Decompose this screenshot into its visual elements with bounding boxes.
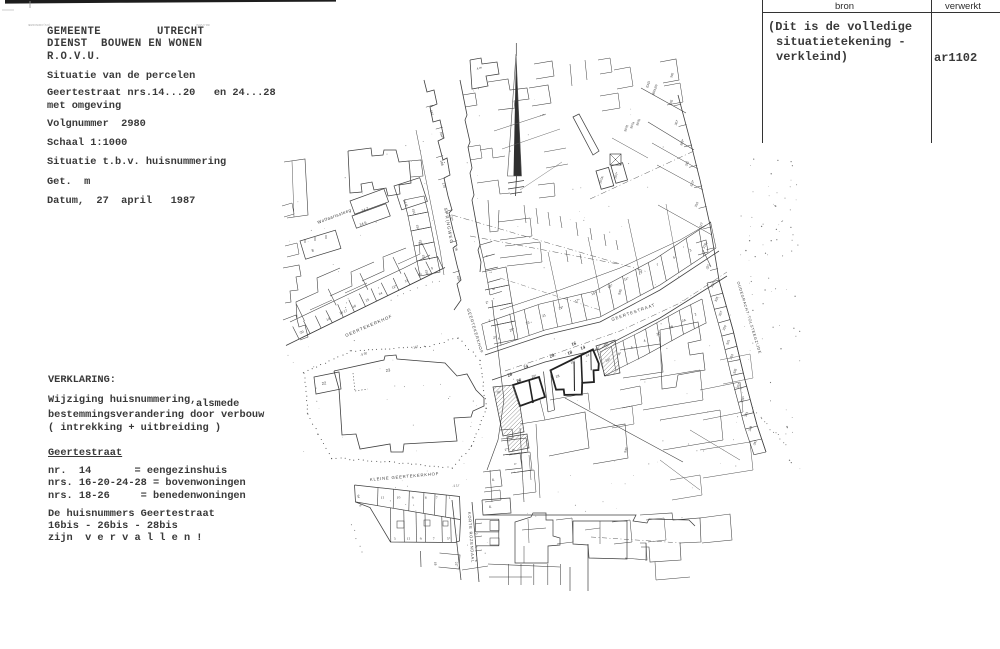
svg-text:GEERTEKERKHOF: GEERTEKERKHOF: [344, 313, 393, 337]
svg-text:19: 19: [326, 317, 331, 322]
svg-text:EAD: EAD: [645, 80, 651, 88]
svg-text:7: 7: [488, 271, 492, 274]
svg-text:4 m: 4 m: [476, 65, 483, 71]
svg-text:16*: 16*: [570, 359, 577, 365]
svg-text:17*: 17*: [574, 298, 581, 304]
svg-text:3: 3: [689, 248, 692, 252]
svg-text:21: 21: [542, 313, 547, 318]
svg-text:9: 9: [412, 496, 415, 500]
svg-text:315: 315: [694, 201, 700, 208]
svg-text:54: 54: [356, 494, 361, 499]
svg-text:335: 335: [732, 368, 738, 375]
svg-text:KORTE ROZENDAAL: KORTE ROZENDAAL: [467, 512, 476, 564]
svg-text:23: 23: [525, 320, 530, 325]
svg-text:309*: 309*: [679, 138, 685, 146]
svg-text:21*: 21*: [454, 561, 459, 567]
svg-text:Wolfaartssteeg: Wolfaartssteeg: [317, 207, 353, 225]
svg-text:4: 4: [513, 462, 517, 465]
svg-text:GEERTEKERKHOF: GEERTEKERKHOF: [466, 308, 485, 354]
svg-text:307b: 307b: [635, 118, 641, 126]
svg-text:16: 16: [352, 304, 357, 309]
svg-text:OUDEGRACHT-TOLSTEEGZIJDE: OUDEGRACHT-TOLSTEEGZIJDE: [736, 281, 762, 354]
svg-text:20.: 20.: [549, 353, 556, 360]
svg-text:331: 331: [725, 339, 731, 346]
svg-text:14: 14: [585, 353, 590, 358]
svg-text:329: 329: [722, 324, 728, 331]
svg-text:11: 11: [381, 496, 385, 500]
svg-text:8: 8: [311, 249, 314, 253]
svg-text:307: 307: [674, 119, 680, 126]
svg-text:9: 9: [420, 537, 423, 541]
svg-text:6.: 6.: [489, 505, 492, 509]
svg-text:305: 305: [669, 72, 675, 78]
svg-text:5: 5: [672, 255, 675, 259]
svg-text:10: 10: [397, 496, 401, 500]
svg-text:9: 9: [430, 266, 433, 270]
svg-text:159: 159: [424, 269, 429, 275]
svg-text:2: 2: [694, 312, 697, 316]
svg-text:4: 4: [485, 255, 489, 258]
svg-text:14: 14: [378, 291, 383, 296]
svg-text:13*: 13*: [607, 283, 614, 289]
svg-text:325: 325: [714, 296, 720, 303]
svg-text:25*: 25*: [509, 327, 516, 333]
svg-text:8: 8: [425, 496, 428, 500]
svg-text:. 5 30: . 5 30: [359, 351, 368, 357]
svg-text:. 147: . 147: [411, 344, 419, 350]
svg-text:341: 341: [744, 411, 750, 418]
svg-text:18: 18: [567, 350, 574, 357]
svg-text:19*: 19*: [558, 305, 565, 311]
svg-text:311: 311: [684, 160, 690, 166]
svg-text:3: 3: [394, 537, 397, 541]
svg-text:166: 166: [439, 160, 444, 167]
svg-text:2*: 2*: [485, 300, 490, 305]
svg-text:8*: 8*: [618, 351, 623, 356]
svg-text:14: 14: [580, 345, 587, 352]
svg-text:15: 15: [365, 297, 370, 302]
svg-text:11: 11: [404, 278, 409, 283]
svg-text:23: 23: [385, 367, 391, 373]
svg-text:6: 6: [630, 345, 633, 349]
svg-text:14-9: 14-9: [402, 199, 408, 207]
svg-text:+ m: + m: [539, 112, 546, 118]
svg-text:545: 545: [617, 289, 623, 296]
svg-text:2C: 2C: [656, 331, 662, 336]
svg-text:BRAZN: BRAZN: [651, 83, 659, 95]
svg-text:18: 18: [555, 374, 560, 379]
svg-text:333: 333: [729, 353, 735, 360]
svg-text:162: 162: [429, 109, 434, 116]
svg-text:327: 327: [718, 310, 724, 317]
svg-text:170: 170: [441, 182, 446, 189]
svg-text:KLEINE GEERTEKERKHOF: KLEINE GEERTEKERKHOF: [370, 471, 440, 482]
svg-text:11: 11: [407, 537, 411, 541]
svg-text:16: 16: [571, 341, 578, 348]
svg-text:5*: 5*: [447, 537, 451, 541]
svg-text:12*: 12*: [391, 284, 398, 290]
svg-text:14-7: 14-7: [361, 207, 369, 213]
svg-text:107*: 107*: [613, 171, 619, 179]
svg-text:6.: 6.: [492, 478, 495, 482]
svg-text:9: 9: [358, 504, 362, 507]
svg-text:153: 153: [415, 224, 420, 230]
svg-text:180: 180: [456, 275, 461, 282]
svg-text:339*: 339*: [740, 395, 746, 403]
svg-text:GEERTESTRAAT: GEERTESTRAAT: [611, 302, 656, 322]
svg-text:11*: 11*: [623, 276, 630, 282]
svg-text:107A: 107A: [598, 175, 605, 184]
svg-text:9: 9: [640, 270, 643, 274]
svg-text:7: 7: [656, 263, 659, 267]
svg-text:545: 545: [623, 447, 629, 454]
svg-text:2A: 2A: [681, 318, 687, 323]
svg-text:22: 22: [321, 380, 327, 386]
svg-text:1: 1: [449, 496, 452, 500]
svg-text:7: 7: [433, 537, 436, 541]
svg-text:. 2 17: . 2 17: [452, 483, 460, 488]
svg-text:7: 7: [436, 496, 439, 500]
svg-text:4: 4: [643, 339, 646, 343]
svg-text:10: 10: [417, 272, 422, 277]
svg-text:343: 343: [748, 425, 754, 432]
svg-text:19: 19: [433, 561, 438, 565]
